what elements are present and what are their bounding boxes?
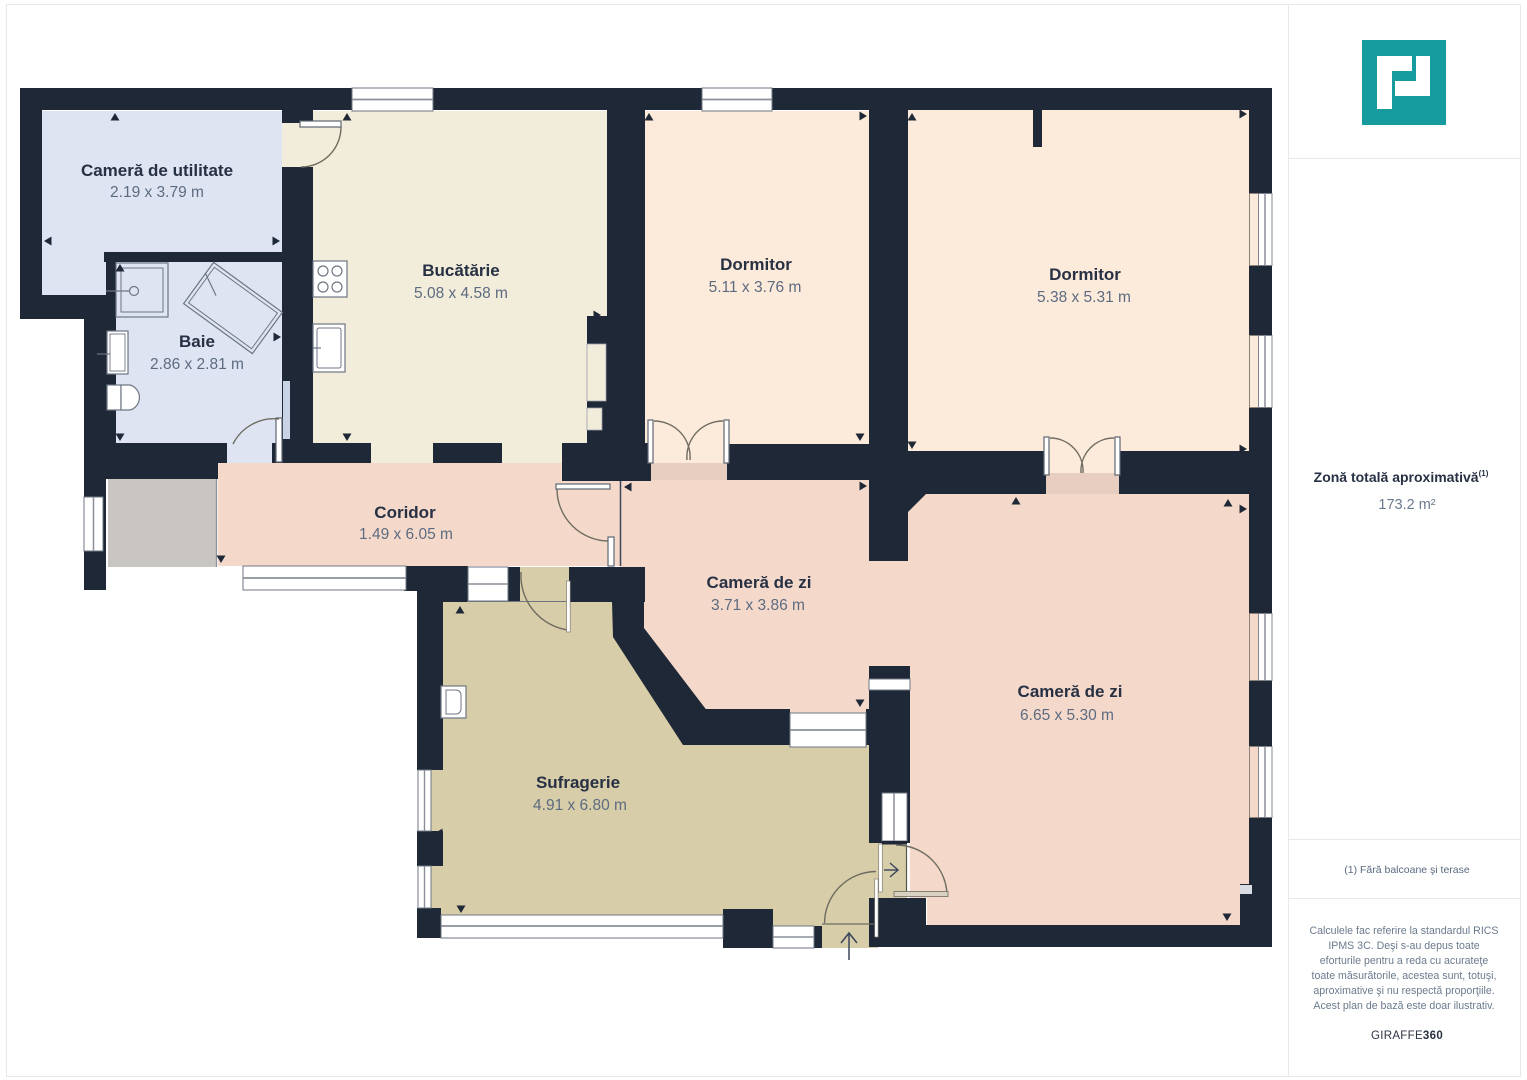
svg-text:Cameră de utilitate: Cameră de utilitate — [81, 161, 233, 180]
svg-text:1.49 x 6.05 m: 1.49 x 6.05 m — [359, 526, 453, 543]
svg-text:Sufragerie: Sufragerie — [536, 773, 620, 792]
svg-text:3.71 x 3.86 m: 3.71 x 3.86 m — [711, 597, 805, 614]
svg-text:Acest plan de bază este doar i: Acest plan de bază este doar ilustrativ. — [1313, 1000, 1494, 1012]
svg-text:Coridor: Coridor — [374, 503, 436, 522]
svg-text:2.19 x 3.79 m: 2.19 x 3.79 m — [110, 184, 204, 201]
svg-text:Cameră de zi: Cameră de zi — [1018, 682, 1123, 701]
svg-text:2.86 x 2.81 m: 2.86 x 2.81 m — [150, 356, 244, 373]
svg-text:Zonă totală aproximativă(1): Zonă totală aproximativă(1) — [1314, 469, 1489, 485]
svg-text:Dormitor: Dormitor — [720, 255, 792, 274]
svg-text:5.08 x 4.58 m: 5.08 x 4.58 m — [414, 285, 508, 302]
svg-text:5.11 x 3.76 m: 5.11 x 3.76 m — [709, 279, 802, 296]
svg-text:4.91 x 6.80 m: 4.91 x 6.80 m — [533, 797, 627, 814]
svg-text:eforturile pentru a reda cu ac: eforturile pentru a reda cu acurateţe — [1320, 955, 1489, 967]
svg-text:173.2 m²: 173.2 m² — [1378, 497, 1435, 513]
svg-text:GIRAFFE360: GIRAFFE360 — [1371, 1030, 1443, 1042]
svg-text:toate măsurătorile, acestea su: toate măsurătorile, acestea sunt, totuşi… — [1312, 970, 1497, 982]
svg-text:5.38 x 5.31 m: 5.38 x 5.31 m — [1037, 289, 1131, 306]
svg-text:Dormitor: Dormitor — [1049, 265, 1121, 284]
svg-text:Baie: Baie — [179, 332, 215, 351]
svg-text:Cameră de zi: Cameră de zi — [707, 573, 812, 592]
svg-text:(1) Fără balcoane şi terase: (1) Fără balcoane şi terase — [1344, 864, 1470, 876]
svg-text:Bucătărie: Bucătărie — [422, 261, 499, 280]
svg-text:Calculele fac referire la stan: Calculele fac referire la standardul RIC… — [1309, 925, 1498, 937]
svg-text:6.65 x 5.30 m: 6.65 x 5.30 m — [1020, 707, 1114, 724]
svg-text:aproximative şi nu respectă pr: aproximative şi nu respectă proporţiile. — [1313, 985, 1494, 997]
svg-text:IPMS 3C. Deşi s-au depus toate: IPMS 3C. Deşi s-au depus toate — [1328, 940, 1479, 952]
